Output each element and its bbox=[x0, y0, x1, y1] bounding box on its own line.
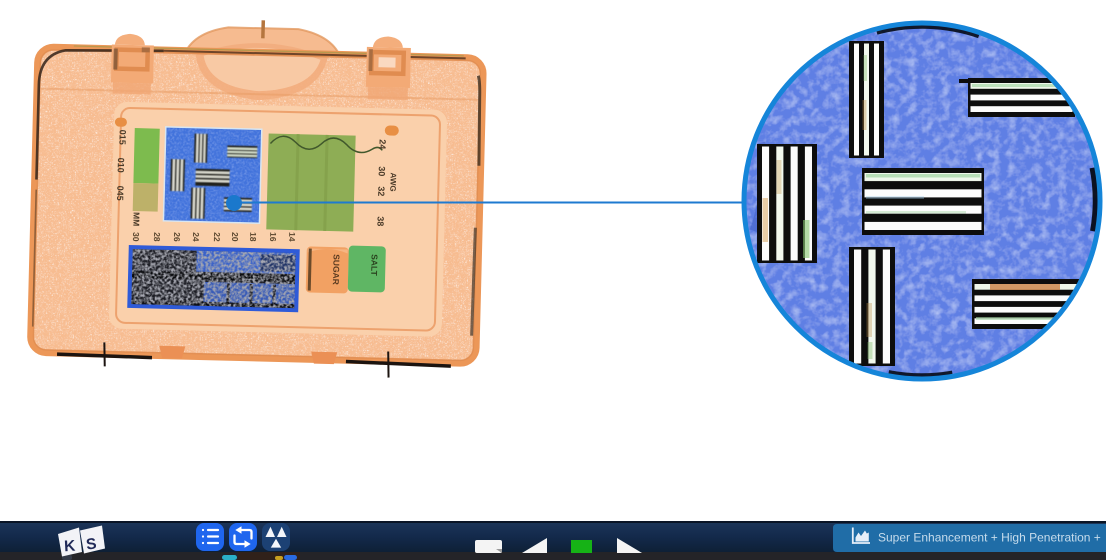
svg-text:32: 32 bbox=[376, 186, 386, 196]
svg-text:SALT: SALT bbox=[369, 254, 380, 277]
svg-text:22: 22 bbox=[212, 232, 222, 242]
svg-text:24: 24 bbox=[377, 139, 387, 149]
svg-text:045: 045 bbox=[115, 186, 125, 201]
svg-text:24: 24 bbox=[191, 232, 201, 242]
svg-text:S: S bbox=[85, 536, 97, 554]
svg-text:18: 18 bbox=[248, 232, 258, 242]
svg-text:30: 30 bbox=[377, 166, 387, 176]
svg-text:14: 14 bbox=[287, 232, 297, 242]
svg-text:30: 30 bbox=[131, 232, 141, 242]
svg-text:16: 16 bbox=[268, 232, 278, 242]
svg-text:015: 015 bbox=[117, 130, 127, 145]
svg-text:28: 28 bbox=[152, 232, 162, 242]
svg-text:MM: MM bbox=[131, 212, 141, 226]
svg-text:Super Enhancement + High Penet: Super Enhancement + High Penetration + bbox=[878, 531, 1101, 545]
svg-text:010: 010 bbox=[116, 158, 126, 173]
svg-text:38: 38 bbox=[375, 216, 385, 226]
svg-text:AWG: AWG bbox=[388, 173, 397, 192]
svg-text:20: 20 bbox=[230, 232, 240, 242]
svg-text:K: K bbox=[64, 538, 77, 556]
svg-text:26: 26 bbox=[172, 232, 182, 242]
svg-text:SUGAR: SUGAR bbox=[331, 254, 342, 285]
